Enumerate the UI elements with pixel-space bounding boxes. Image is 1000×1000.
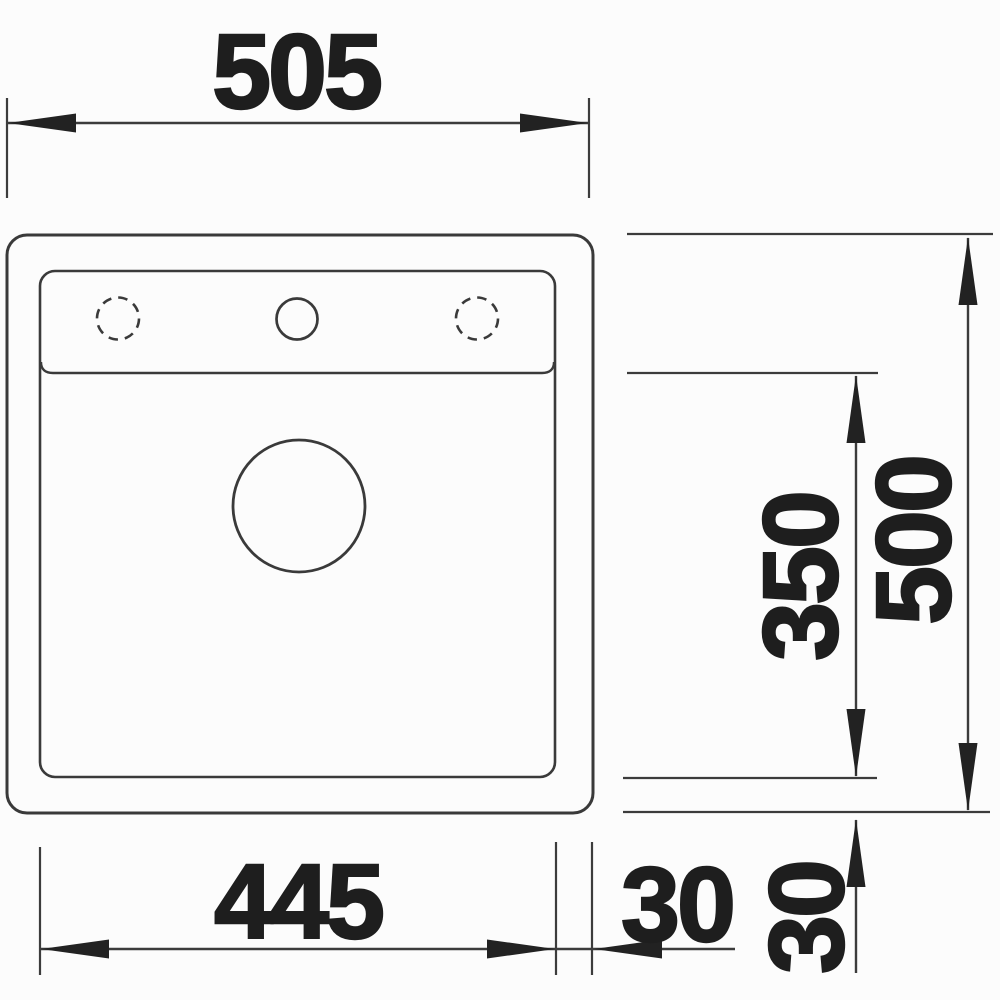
dim-bowl-width-label: 445 <box>214 843 382 961</box>
dim-bowl-depth-label: 350 <box>742 493 860 661</box>
dim-bowl-depth: 350 <box>742 375 866 777</box>
dim-overall-depth-arrow-bottom <box>959 743 978 811</box>
tap-hole-right-optional <box>456 298 498 340</box>
dim-overall-width-arrow-left <box>8 114 76 133</box>
dim-overall-depth-label: 500 <box>855 457 973 625</box>
dim-overall-width-label: 505 <box>212 13 380 131</box>
dim-bowl-width-arrow-left <box>41 940 109 959</box>
dim-overall-depth-arrow-top <box>959 237 978 305</box>
dim-rim-bottom-offset-label: 30 <box>748 862 866 974</box>
drawing-canvas: 505 500 350 30 <box>0 0 1000 1000</box>
drain-outline <box>233 440 365 572</box>
sink-outer-edge <box>7 235 593 813</box>
dim-bowl-width-arrow-right <box>487 940 555 959</box>
sink-rim <box>40 271 555 777</box>
dim-bowl-depth-arrow-top <box>847 375 866 443</box>
sink-body <box>7 235 593 813</box>
dim-rim-bottom-offset: 30 <box>748 819 866 974</box>
tap-hole-center <box>277 299 318 340</box>
dim-bowl-depth-arrow-bottom <box>847 709 866 777</box>
dim-rim-right-offset-label: 30 <box>621 846 733 964</box>
sink-top-view-dimension-drawing: 505 500 350 30 <box>0 0 1000 1000</box>
dim-overall-depth: 500 <box>855 237 978 811</box>
tap-ledge-divider <box>41 362 554 373</box>
dim-rim-right-offset: 30 <box>594 846 733 964</box>
dim-overall-width-arrow-right <box>520 114 588 133</box>
dim-overall-width: 505 <box>7 13 589 198</box>
tap-hole-left-optional <box>97 298 139 340</box>
